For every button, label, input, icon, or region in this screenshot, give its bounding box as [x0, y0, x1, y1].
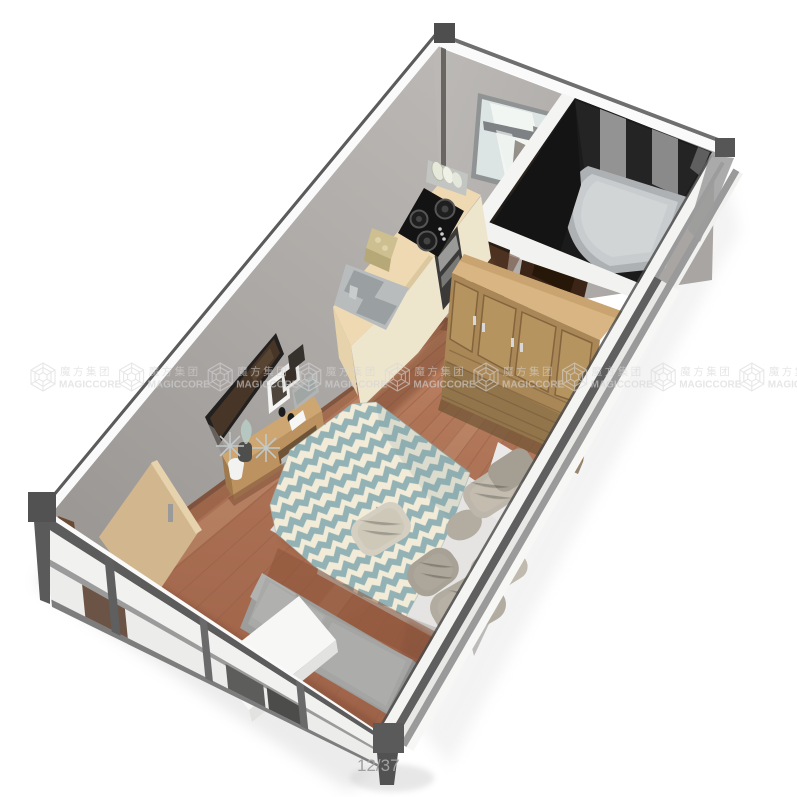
- svg-text:MAGICCORE: MAGICCORE: [59, 380, 122, 391]
- svg-text:12/37: 12/37: [357, 756, 400, 775]
- svg-text:魔方集团: 魔方集团: [60, 365, 112, 378]
